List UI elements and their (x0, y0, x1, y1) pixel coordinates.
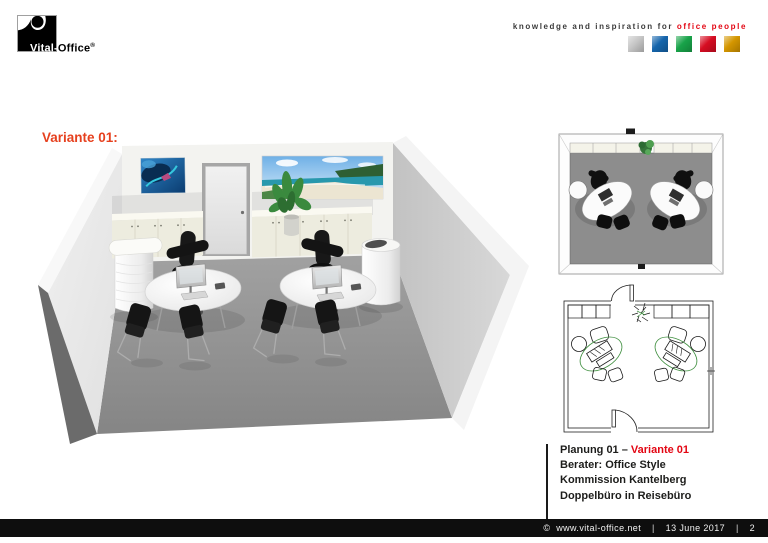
3d-room-perspective-render (35, 135, 545, 470)
color-square-silver (628, 36, 644, 52)
color-square-red (700, 36, 716, 52)
footer-date: 13 June 2017 (666, 523, 725, 533)
3d-room-top-view-render (553, 127, 738, 283)
floor-plan-line-drawing (553, 283, 738, 445)
details-line1-prefix: Planung 01 – (560, 444, 631, 456)
footer-separator-2: | (736, 523, 739, 533)
footer-bar: © www.vital-office.net | 13 June 2017 | … (0, 519, 768, 537)
plan-details-text: Planung 01 – Variante 01 Berater: Office… (560, 443, 691, 504)
details-line-2: Berater: Office Style (560, 458, 691, 473)
details-line1-variant: Variante 01 (631, 444, 689, 456)
plan-left-workplace (572, 326, 628, 383)
details-line-4: Doppelbüro in Reisebüro (560, 489, 691, 504)
tagline-prefix: knowledge and inspiration for (513, 22, 677, 31)
color-square-blue (652, 36, 668, 52)
door (202, 163, 250, 256)
header-tagline: knowledge and inspiration for office peo… (513, 22, 747, 31)
door-handle (241, 211, 244, 214)
plan-doors (611, 285, 637, 432)
plan-reference-cross (707, 367, 715, 375)
logo-wordmark: Vital-Office® (30, 42, 95, 55)
brand-color-squares (628, 36, 740, 52)
tagline-highlight: office people (677, 22, 747, 31)
color-square-green (676, 36, 692, 52)
footer-separator-1: | (652, 523, 655, 533)
registered-mark: ® (90, 42, 95, 49)
logo-text-suffix: Office (58, 43, 90, 55)
copyright-symbol: © (543, 523, 550, 533)
color-square-gold (724, 36, 740, 52)
slide-page: Vital-Office® knowledge and inspiration … (0, 0, 768, 543)
footer-page-number: 2 (750, 523, 755, 533)
details-line-3: Kommission Kantelberg (560, 473, 691, 488)
website-link[interactable]: www.vital-office.net (556, 523, 641, 533)
blue-wall-picture (139, 158, 185, 194)
details-divider-line (546, 444, 548, 519)
details-line-1: Planung 01 – Variante 01 (560, 443, 691, 458)
logo-text-prefix: Vital- (30, 43, 58, 55)
plan-right-workplace (649, 326, 705, 383)
